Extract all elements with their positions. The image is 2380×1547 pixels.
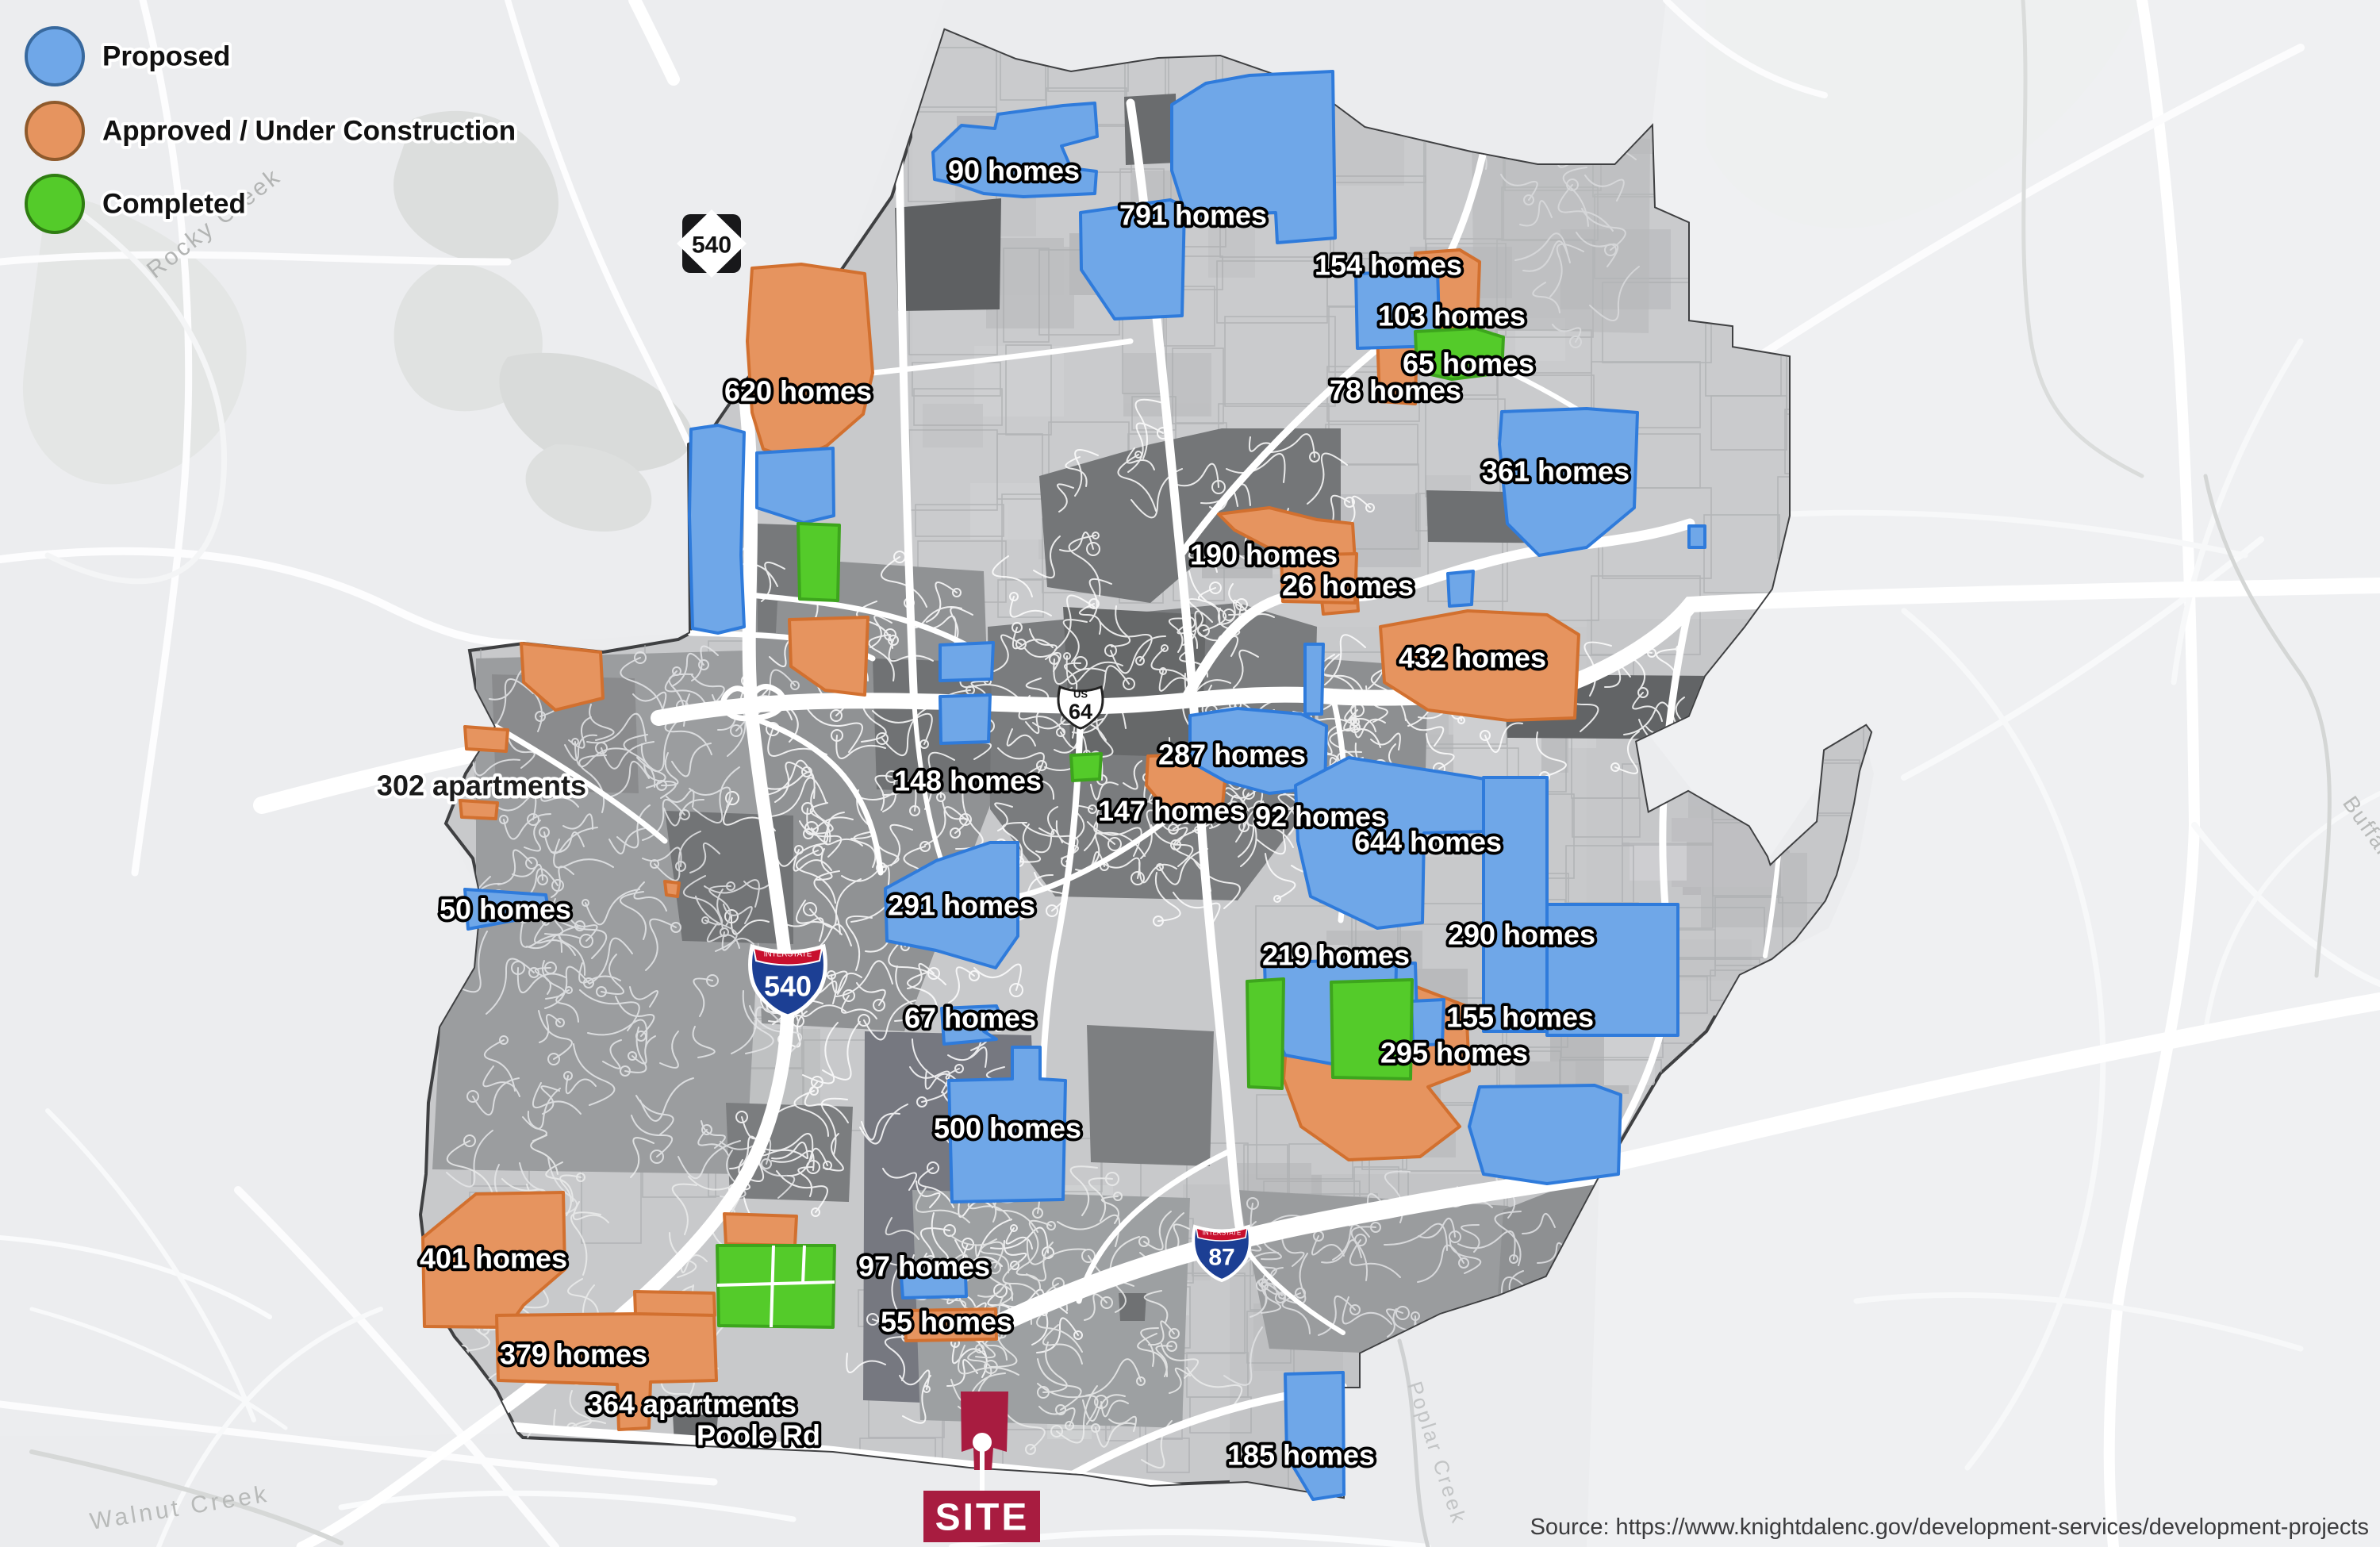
svg-text:154 homes: 154 homes: [1315, 249, 1462, 282]
svg-text:364 apartments: 364 apartments: [587, 1388, 797, 1421]
svg-text:Poole Rd: Poole Rd: [697, 1419, 820, 1452]
svg-text:155 homes: 155 homes: [1446, 1001, 1594, 1034]
svg-text:500 homes: 500 homes: [934, 1112, 1081, 1145]
svg-text:432 homes: 432 homes: [1399, 642, 1546, 674]
svg-text:INTERSTATE: INTERSTATE: [764, 950, 812, 959]
svg-text:540: 540: [764, 970, 812, 1003]
svg-text:287 homes: 287 homes: [1158, 739, 1306, 771]
svg-text:290 homes: 290 homes: [1448, 919, 1595, 951]
svg-text:90 homes: 90 homes: [948, 155, 1080, 187]
svg-text:644 homes: 644 homes: [1354, 826, 1502, 858]
svg-text:295 homes: 295 homes: [1380, 1037, 1528, 1069]
svg-text:791 homes: 791 homes: [1119, 199, 1267, 232]
svg-text:147 homes: 147 homes: [1098, 795, 1246, 827]
svg-text:Completed: Completed: [102, 189, 246, 220]
svg-text:379 homes: 379 homes: [500, 1338, 647, 1371]
svg-text:103 homes: 103 homes: [1378, 300, 1526, 332]
svg-text:55 homes: 55 homes: [881, 1306, 1012, 1338]
svg-text:64: 64: [1069, 700, 1092, 724]
svg-text:302 apartments: 302 apartments: [377, 770, 586, 802]
svg-text:26 homes: 26 homes: [1282, 570, 1414, 602]
svg-text:185 homes: 185 homes: [1227, 1439, 1375, 1472]
svg-text:540: 540: [692, 232, 731, 259]
svg-text:INTERSTATE: INTERSTATE: [1203, 1230, 1242, 1237]
svg-text:67 homes: 67 homes: [904, 1002, 1036, 1035]
svg-text:SITE: SITE: [935, 1497, 1030, 1539]
svg-text:219 homes: 219 homes: [1262, 939, 1410, 972]
svg-text:Proposed: Proposed: [102, 41, 230, 72]
svg-text:Source: https://www.knightdale: Source: https://www.knightdalenc.gov/dev…: [1530, 1514, 2369, 1540]
svg-text:Approved / Under Construction: Approved / Under Construction: [102, 116, 516, 147]
svg-text:50 homes: 50 homes: [440, 893, 571, 926]
svg-text:401 homes: 401 homes: [420, 1242, 567, 1275]
svg-text:190 homes: 190 homes: [1190, 539, 1338, 571]
svg-text:97 homes: 97 homes: [858, 1250, 990, 1283]
svg-text:291 homes: 291 homes: [888, 889, 1035, 922]
svg-text:148 homes: 148 homes: [894, 765, 1042, 797]
svg-text:US: US: [1073, 689, 1088, 701]
svg-text:620 homes: 620 homes: [724, 375, 872, 408]
svg-text:78 homes: 78 homes: [1330, 374, 1461, 407]
svg-text:361 homes: 361 homes: [1482, 455, 1630, 488]
svg-text:87: 87: [1208, 1245, 1234, 1271]
